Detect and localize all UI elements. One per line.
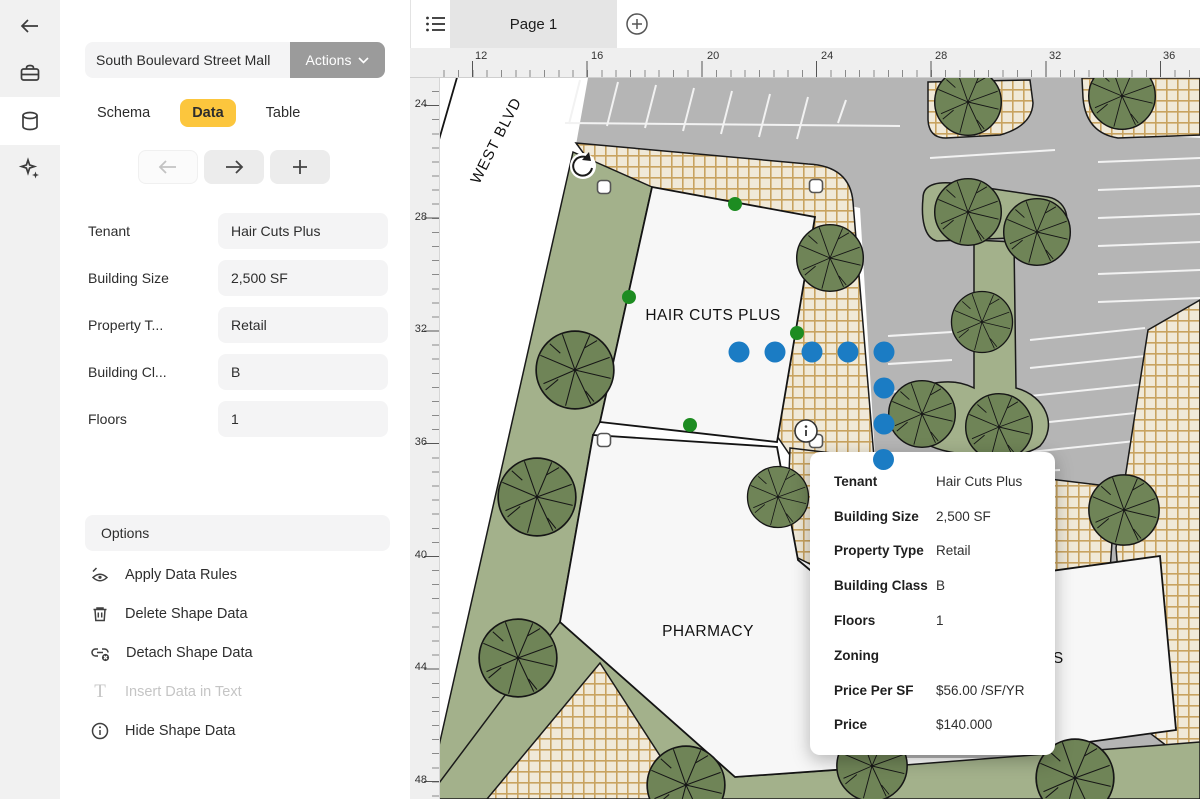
street-label: WEST BLVD xyxy=(467,95,525,187)
building-label-pharmacy: PHARMACY xyxy=(662,623,754,640)
tab-schema[interactable]: Schema xyxy=(85,99,162,127)
arrow-left-icon xyxy=(158,160,178,174)
tooltip-row: Floors1 xyxy=(810,603,1055,638)
prev-record-button[interactable] xyxy=(138,150,198,184)
field-input-tenant[interactable]: Hair Cuts Plus xyxy=(218,213,388,249)
ruler-number: 32 xyxy=(410,323,427,335)
info-icon xyxy=(90,721,110,741)
ruler-corner xyxy=(410,48,440,78)
field-row: Building Size 2,500 SF xyxy=(88,260,418,296)
sidebar-item-toolbox[interactable] xyxy=(0,49,60,97)
tooltip-row: Zoning xyxy=(810,638,1055,673)
trash-icon xyxy=(90,604,110,624)
field-input-floors[interactable]: 1 xyxy=(218,401,388,437)
building-label-hair-cuts-plus: HAIR CUTS PLUS xyxy=(645,307,780,324)
field-label-building-size: Building Size xyxy=(88,260,169,296)
field-row: Tenant Hair Cuts Plus xyxy=(88,213,418,249)
field-label-floors: Floors xyxy=(88,401,127,437)
field-row: Property T... Retail xyxy=(88,307,418,343)
sparkles-icon xyxy=(18,157,42,181)
ruler-number: 16 xyxy=(591,50,603,62)
eye-rule-icon xyxy=(90,565,110,585)
tab-data[interactable]: Data xyxy=(180,99,235,127)
tooltip-row: Price$140.000 xyxy=(810,708,1055,743)
chevron-down-icon xyxy=(358,57,369,64)
ruler-number: 24 xyxy=(821,50,833,62)
ruler-number: 24 xyxy=(410,98,427,110)
back-arrow-icon xyxy=(18,14,42,38)
database-icon xyxy=(18,109,42,133)
ruler-number: 36 xyxy=(1163,50,1175,62)
tooltip-row: Property TypeRetail xyxy=(810,534,1055,569)
ruler-number: 40 xyxy=(410,549,427,561)
page-list-icon xyxy=(425,14,447,34)
field-label-tenant: Tenant xyxy=(88,213,130,249)
toolbox-icon xyxy=(18,61,42,85)
tooltip-row: Price Per SF$56.00 /SF/YR xyxy=(810,673,1055,708)
sidebar-item-data[interactable] xyxy=(0,97,60,145)
field-label-property-type: Property T... xyxy=(88,307,163,343)
options-header: Options xyxy=(85,515,390,551)
option-apply-data-rules[interactable]: Apply Data Rules xyxy=(90,560,390,590)
vertical-ruler[interactable]: 24 28 32 36 40 44 48 xyxy=(410,78,440,799)
option-detach-shape-data[interactable]: Detach Shape Data xyxy=(90,638,390,668)
left-icon-rail xyxy=(0,0,60,799)
page-tab-bar: Page 1 xyxy=(411,0,1200,48)
actions-button[interactable]: Actions xyxy=(290,42,385,78)
data-panel: South Boulevard Street Mall Actions Sche… xyxy=(60,0,410,799)
add-page-button[interactable] xyxy=(623,10,651,38)
dataset-title: South Boulevard Street Mall xyxy=(96,52,270,68)
street-edge-line xyxy=(440,78,458,164)
plus-circle-icon xyxy=(625,12,649,36)
field-label-building-class: Building Cl... xyxy=(88,354,167,390)
arrow-right-icon xyxy=(224,160,244,174)
ruler-number: 12 xyxy=(475,50,487,62)
next-record-button[interactable] xyxy=(204,150,264,184)
field-input-property-type[interactable]: Retail xyxy=(218,307,388,343)
tooltip-row: Building ClassB xyxy=(810,568,1055,603)
record-nav xyxy=(138,150,330,184)
blue-dot[interactable] xyxy=(873,449,894,470)
drawing-canvas[interactable]: WEST BLVD HAIR CUTS PLUS PHARMACY S xyxy=(440,78,1200,799)
ruler-number: 28 xyxy=(410,211,427,223)
tab-page-1[interactable]: Page 1 xyxy=(450,0,617,48)
horizontal-ruler[interactable]: 12 16 20 24 28 32 36 xyxy=(410,48,1200,78)
back-button[interactable] xyxy=(0,2,60,50)
field-input-building-class[interactable]: B xyxy=(218,354,388,390)
ruler-number: 44 xyxy=(410,661,427,673)
field-input-building-size[interactable]: 2,500 SF xyxy=(218,260,388,296)
sidebar-item-magic[interactable] xyxy=(0,145,60,193)
option-insert-data-in-text[interactable]: T Insert Data in Text xyxy=(90,677,390,707)
field-row: Building Cl... B xyxy=(88,354,418,390)
ruler-number: 48 xyxy=(410,774,427,786)
shape-data-tooltip: TenantHair Cuts Plus Building Size2,500 … xyxy=(810,452,1055,755)
ruler-number: 32 xyxy=(1049,50,1061,62)
dataset-title-field[interactable]: South Boulevard Street Mall xyxy=(85,42,290,78)
panel-tabs: Schema Data Table xyxy=(85,97,312,129)
text-icon: T xyxy=(90,681,110,703)
unlink-icon xyxy=(90,643,111,663)
page-list-button[interactable] xyxy=(419,7,453,41)
option-hide-shape-data[interactable]: Hide Shape Data xyxy=(90,716,390,746)
ruler-number: 36 xyxy=(410,436,427,448)
tooltip-row: Building Size2,500 SF xyxy=(810,499,1055,534)
add-record-button[interactable] xyxy=(270,150,330,184)
field-row: Floors 1 xyxy=(88,401,418,437)
ruler-number: 28 xyxy=(935,50,947,62)
shape-info-icon[interactable] xyxy=(795,420,817,442)
plus-icon xyxy=(292,159,308,175)
option-delete-shape-data[interactable]: Delete Shape Data xyxy=(90,599,390,629)
tab-table[interactable]: Table xyxy=(254,99,313,127)
tooltip-row: TenantHair Cuts Plus xyxy=(810,464,1055,499)
ruler-number: 20 xyxy=(707,50,719,62)
